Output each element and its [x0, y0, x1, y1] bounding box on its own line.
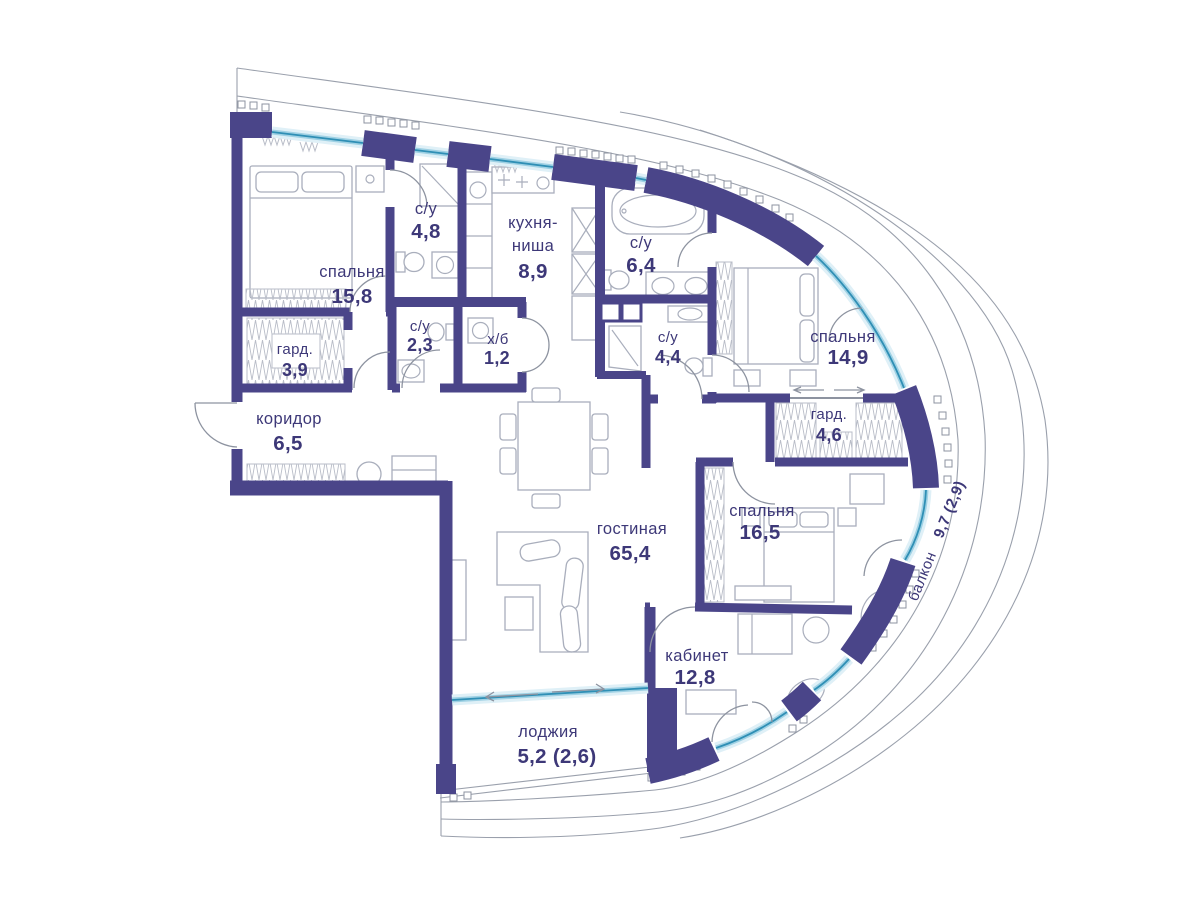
floor-plan-svg: спальня 15,8 с/у 4,8 кухня- ниша 8,9 с/у…	[0, 0, 1200, 902]
bath2-door	[678, 233, 712, 267]
room-label-bedroom2: спальня 14,9	[810, 328, 875, 369]
utility-name: х/б	[487, 331, 508, 348]
window-curve-study-1	[814, 659, 849, 690]
hall-niche-door	[354, 352, 390, 388]
utility-door-2	[522, 345, 549, 372]
hallway-name: коридор	[256, 410, 322, 428]
study-door	[650, 607, 695, 652]
room-label-living: гостиная 65,4	[597, 520, 667, 565]
bath4-name: с/у	[658, 329, 678, 346]
hallway-area: 6,5	[273, 432, 302, 455]
kitchen-name-line1: кухня-	[508, 214, 558, 232]
wardrobe1-name: гард.	[277, 341, 313, 358]
bath2-name: с/у	[630, 234, 653, 252]
window-curve-bedroom3	[905, 490, 926, 560]
bed-bedroom2	[734, 268, 818, 386]
loggia-area: 5,2 (2,6)	[517, 745, 596, 768]
window-top-2	[415, 150, 448, 154]
room-label-kitchen: кухня- ниша 8,9	[508, 214, 558, 283]
study-area: 12,8	[674, 666, 715, 689]
bedroom1-name: спальня	[319, 263, 384, 281]
room-label-bath2: с/у 6,4	[626, 234, 656, 277]
window-top-4	[636, 178, 646, 180]
window-top-1	[272, 132, 363, 143]
window-curve-study-2	[716, 712, 787, 748]
living-area: 65,4	[609, 542, 650, 565]
room-label-bath1: с/у 4,8	[411, 200, 440, 243]
room-label-hallway: коридор 6,5	[256, 410, 322, 455]
room-label-utility: х/б 1,2	[484, 331, 510, 368]
room-label-wardrobe1: гард. 3,9	[277, 341, 313, 380]
wardrobe2-name: гард.	[811, 406, 847, 423]
room-label-wardrobe2: гард. 4,6	[811, 406, 847, 445]
kitchen-area: 8,9	[518, 260, 547, 283]
bath3-name: с/у	[410, 318, 430, 335]
utility-area: 1,2	[484, 348, 510, 368]
bath2-area: 6,4	[626, 254, 656, 277]
bath3-area: 2,3	[407, 335, 433, 355]
entry-door	[195, 403, 237, 447]
kitchen-name-line2: ниша	[512, 237, 555, 255]
bedroom1-area: 15,8	[331, 285, 372, 308]
study-name: кабинет	[665, 647, 729, 665]
loggia-name: лоджия	[518, 723, 578, 741]
bedroom3-name: спальня	[729, 502, 794, 520]
living-furniture	[449, 388, 608, 653]
bedroom3-door	[733, 462, 775, 504]
room-label-loggia: лоджия 5,2 (2,6)	[517, 723, 596, 768]
floor-plan-page: спальня 15,8 с/у 4,8 кухня- ниша 8,9 с/у…	[0, 0, 1200, 902]
wardrobe1-area: 3,9	[282, 360, 308, 380]
utility-door-1	[522, 318, 549, 345]
bath4-area: 4,4	[655, 347, 681, 367]
window-loggia	[452, 688, 648, 700]
living-name: гостиная	[597, 520, 667, 538]
wardrobe2-slide-arrows	[794, 387, 864, 393]
bath1-name: с/у	[415, 200, 438, 218]
bath1-area: 4,8	[411, 220, 440, 243]
bedroom3-area: 16,5	[739, 521, 780, 544]
room-label-bath3: с/у 2,3	[407, 318, 433, 355]
bedroom2-area: 14,9	[827, 346, 868, 369]
room-label-bath4: с/у 4,4	[655, 329, 681, 367]
wardrobe2-area: 4,6	[816, 425, 842, 445]
room-label-study: кабинет 12,8	[665, 647, 729, 689]
bedroom2-name: спальня	[810, 328, 875, 346]
